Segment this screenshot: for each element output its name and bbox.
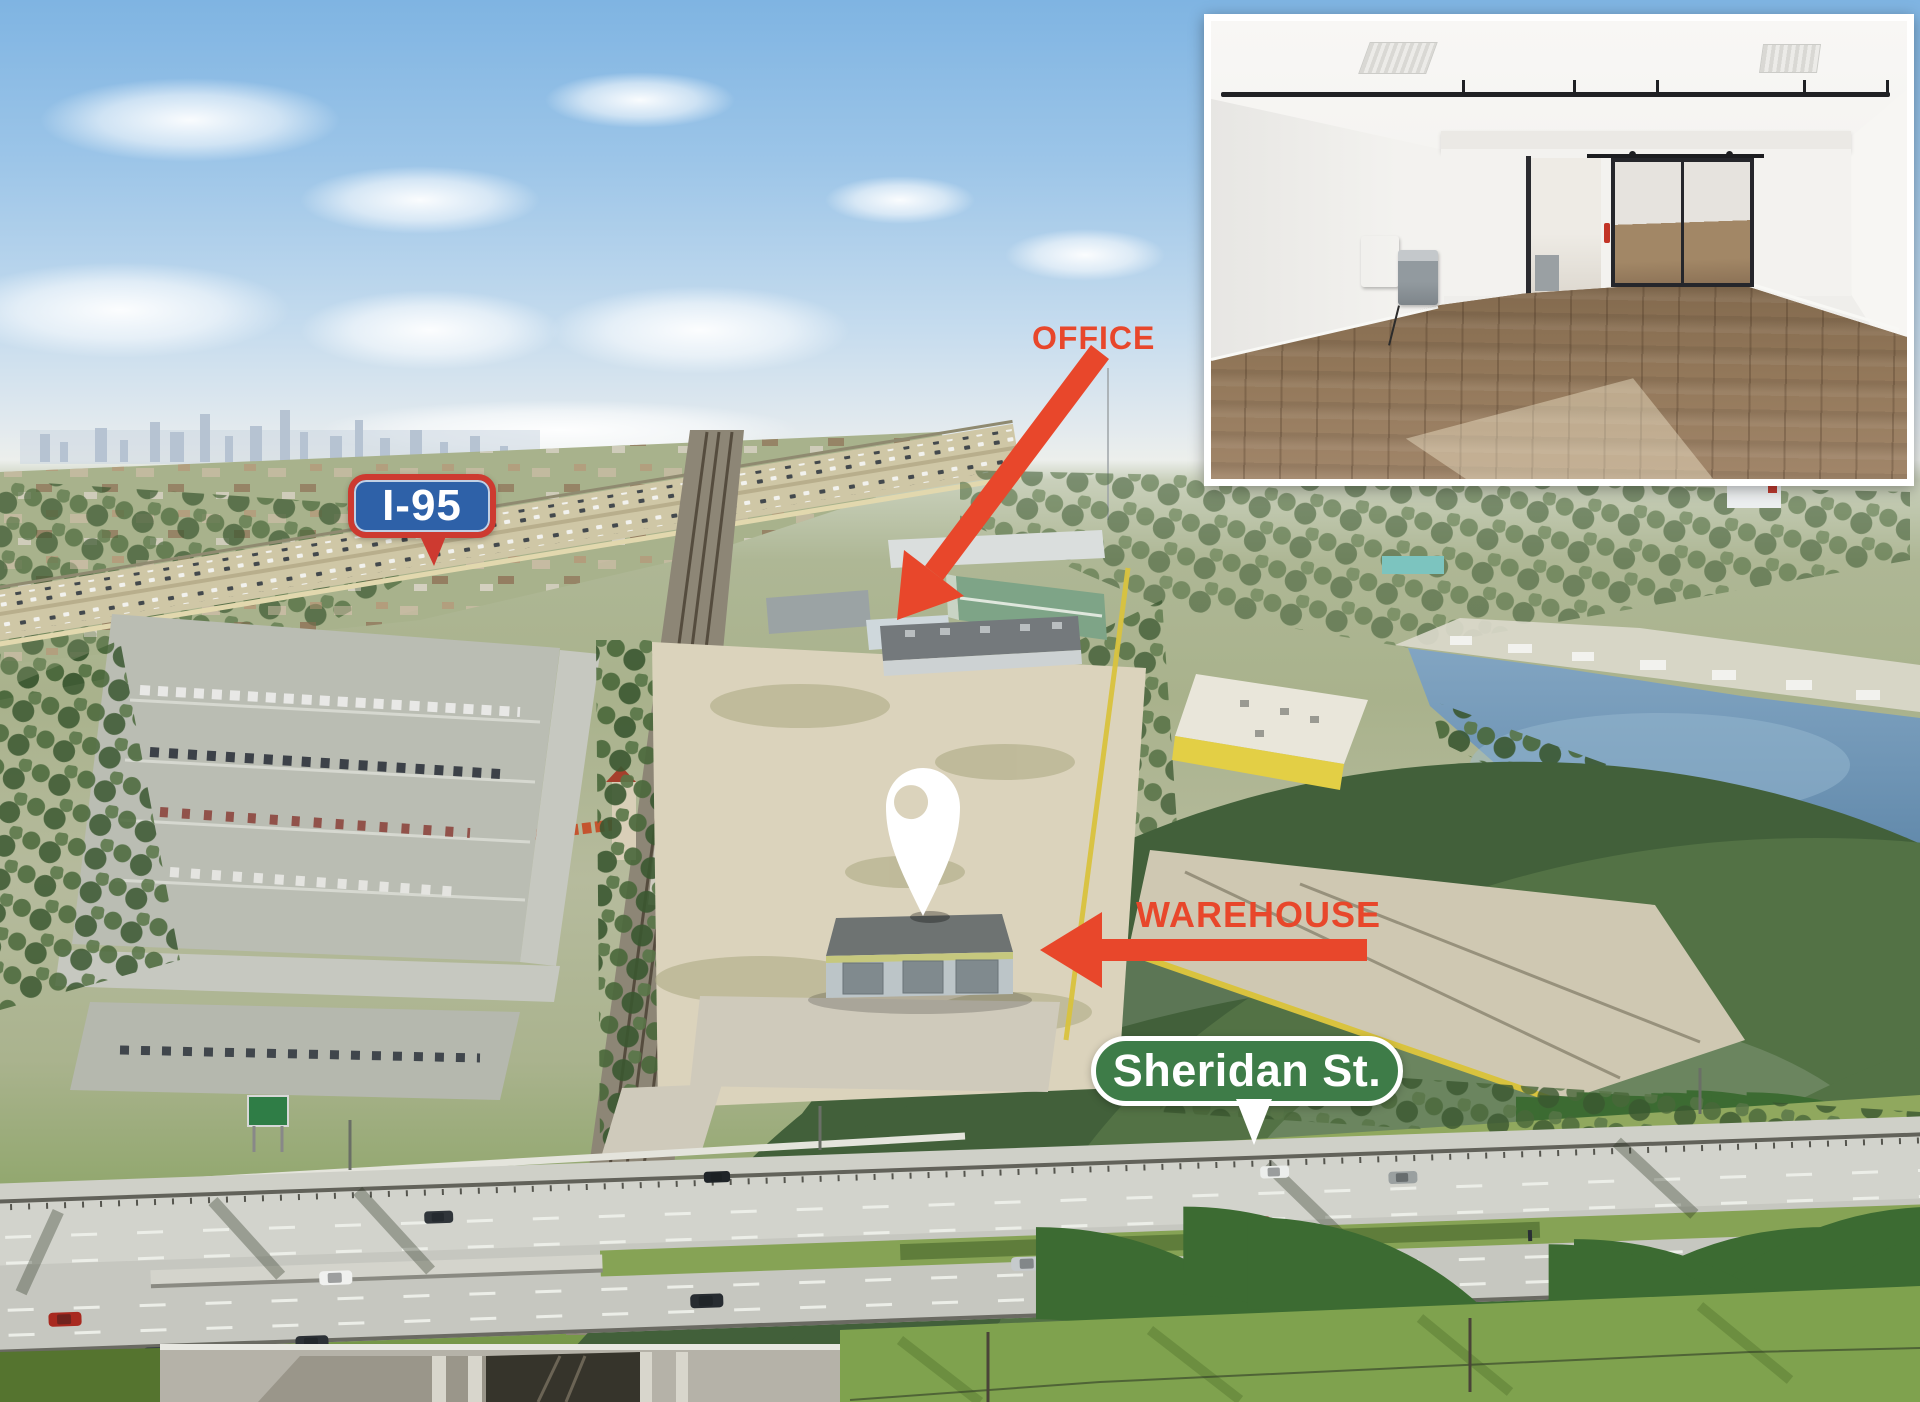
inset-interior-photo — [1204, 14, 1914, 486]
pipe-mount — [1803, 80, 1806, 93]
sheridan-street-sign: Sheridan St. — [1091, 1036, 1403, 1106]
aerial-property-photo: OFFICE WAREHOUSE I-95 Sheridan St. — [0, 0, 1920, 1402]
warehouse-label: WAREHOUSE — [1136, 894, 1381, 936]
water-fountain — [1398, 250, 1438, 305]
ceiling-vent — [1759, 44, 1821, 73]
pipe-mount — [1886, 80, 1889, 93]
pipe-mount — [1656, 80, 1659, 93]
i95-shield-pointer — [420, 536, 446, 566]
door-roller — [1726, 151, 1733, 158]
door-frame — [1526, 156, 1532, 298]
sheridan-sign-pointer — [1236, 1099, 1272, 1145]
water-fountain — [1361, 236, 1399, 286]
kitchenette-cabinet — [1535, 255, 1559, 292]
office-label: OFFICE — [1032, 320, 1155, 357]
office-interior — [1211, 21, 1907, 479]
road-guide-sign — [248, 1096, 288, 1126]
sheridan-street-sign-text: Sheridan St. — [1113, 1045, 1382, 1097]
ceiling-vent — [1358, 42, 1438, 74]
overpass-bridge — [160, 1344, 840, 1402]
i95-shield: I-95 — [348, 474, 496, 538]
glass-door-rail — [1587, 154, 1764, 158]
clouds — [0, 72, 1165, 460]
subject-warehouse — [808, 914, 1032, 1014]
i95-shield-text: I-95 — [382, 481, 462, 531]
door-roller — [1629, 151, 1636, 158]
pipe-mount — [1573, 80, 1576, 93]
glass-mullion — [1681, 158, 1684, 286]
track-light — [1413, 94, 1425, 106]
pedestrian — [1528, 1230, 1532, 1241]
pipe-mount — [1462, 80, 1465, 93]
track-light — [1782, 94, 1794, 106]
fire-extinguisher — [1604, 223, 1611, 244]
